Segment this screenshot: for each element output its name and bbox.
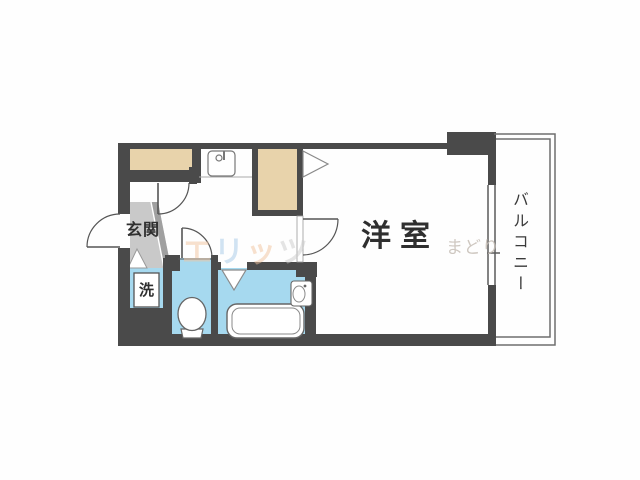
western-room-label: 洋室	[361, 222, 439, 252]
balcony-label: バルコニー	[511, 191, 527, 296]
kitchen-sink	[199, 151, 252, 177]
watermark-letter: ッ	[246, 227, 278, 271]
watermark-letter: ツ	[278, 227, 310, 271]
watermark: エ リ ッ ツ	[182, 227, 310, 271]
entrance-door-arc	[87, 214, 120, 247]
watermark-letter: エ	[182, 227, 214, 271]
closet-top-left	[130, 149, 192, 170]
wash-basin	[291, 281, 312, 306]
closet-middle	[258, 149, 297, 210]
toilet	[178, 298, 206, 339]
floorplan-image: エ リ ッ ツ まどり 玄関 洗 洋室 バルコニー	[0, 0, 640, 480]
bathtub	[227, 304, 304, 338]
watermark-secondary: まどり	[446, 233, 500, 258]
watermark-letter: リ	[214, 227, 246, 271]
washer-label: 洗	[134, 273, 159, 307]
entrance-label: 玄関	[126, 222, 160, 238]
hall-door-arc	[158, 183, 189, 214]
floorplan-drawing	[0, 0, 640, 480]
closet-door-triangle	[303, 151, 328, 177]
